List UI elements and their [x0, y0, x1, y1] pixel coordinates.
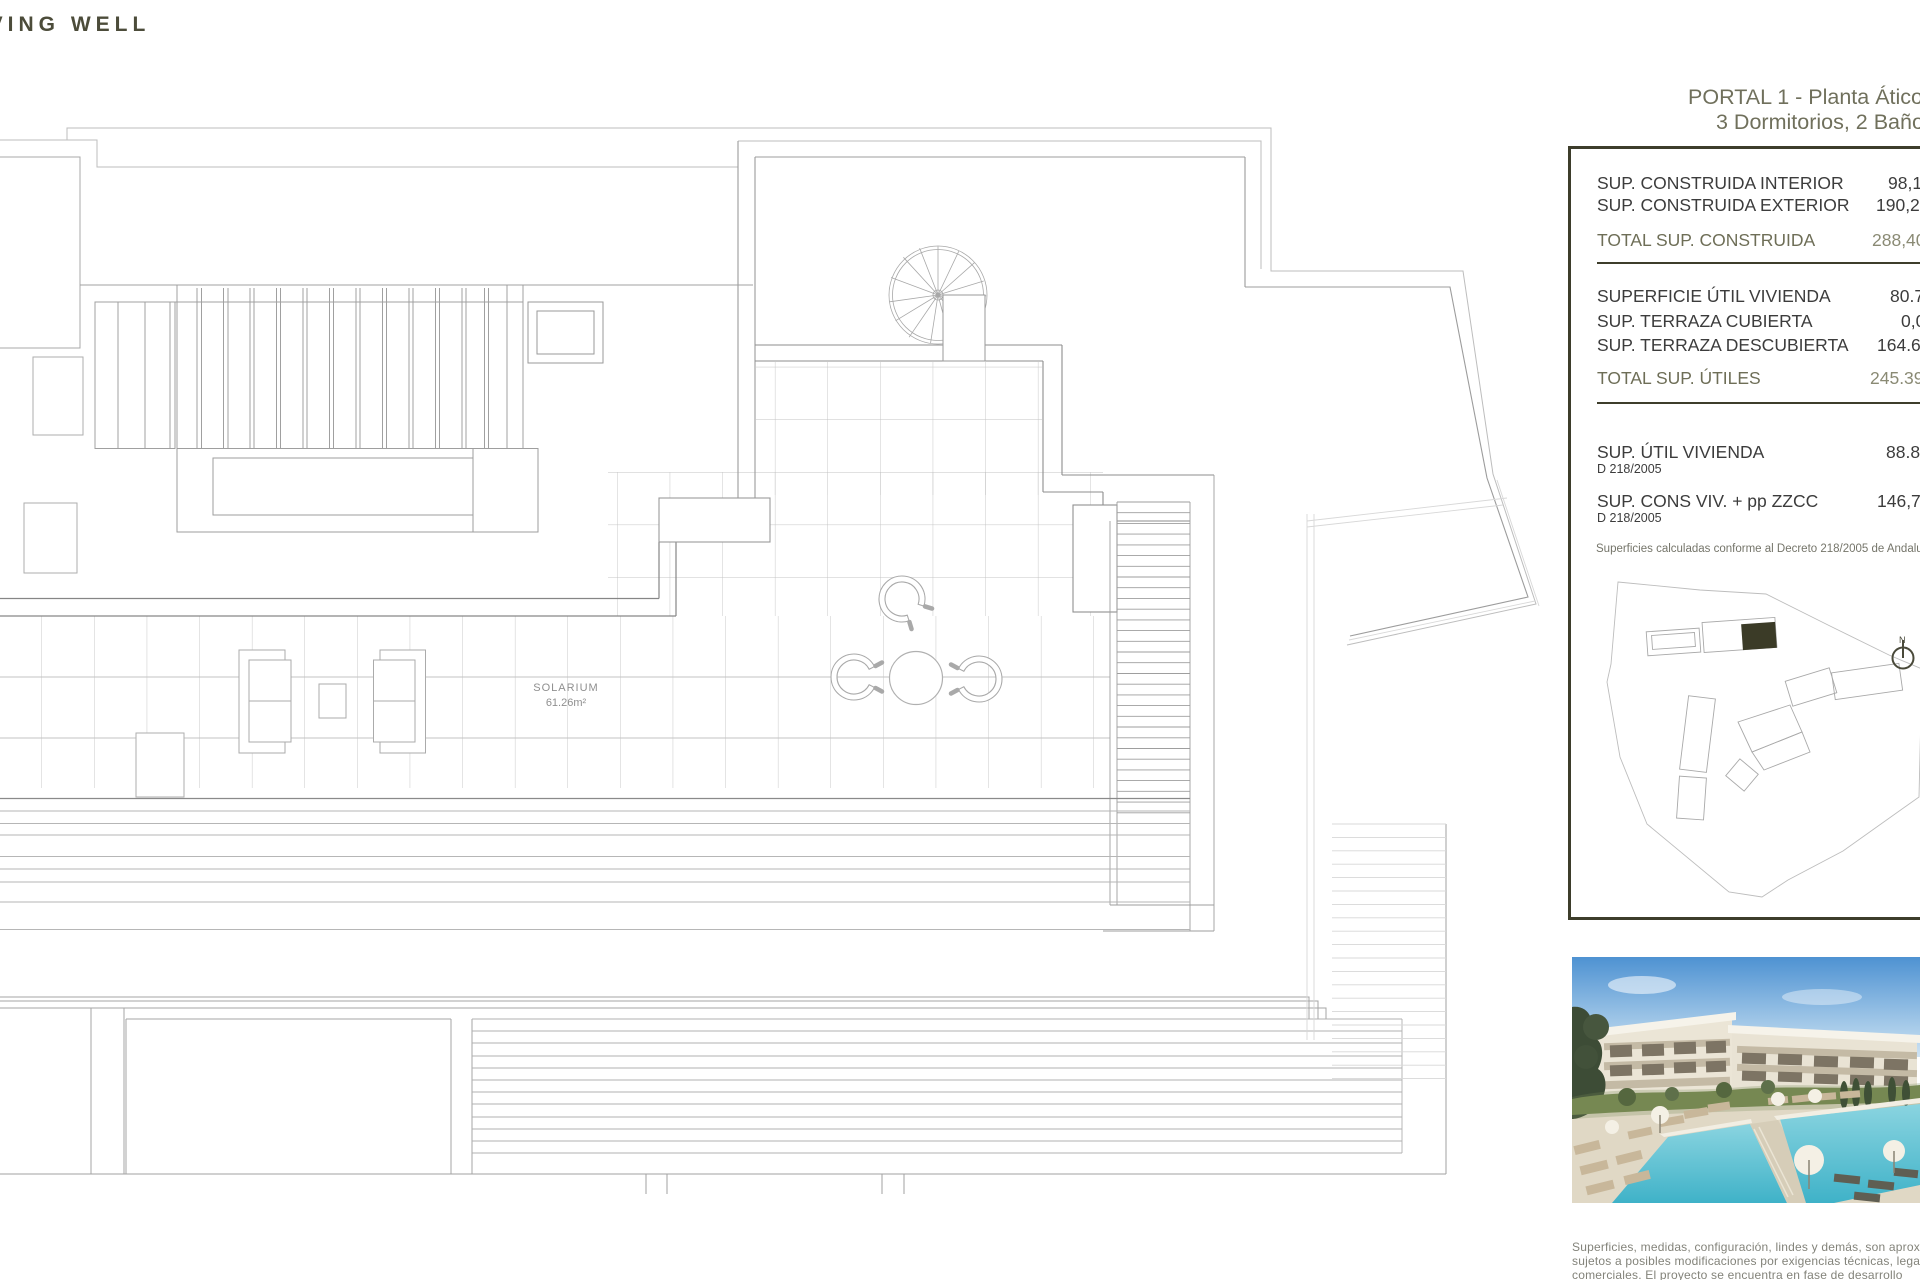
svg-text:N: N — [1899, 635, 1906, 645]
svg-text:SOLARIUM: SOLARIUM — [533, 682, 598, 694]
svg-text:61.26m²: 61.26m² — [546, 697, 587, 709]
